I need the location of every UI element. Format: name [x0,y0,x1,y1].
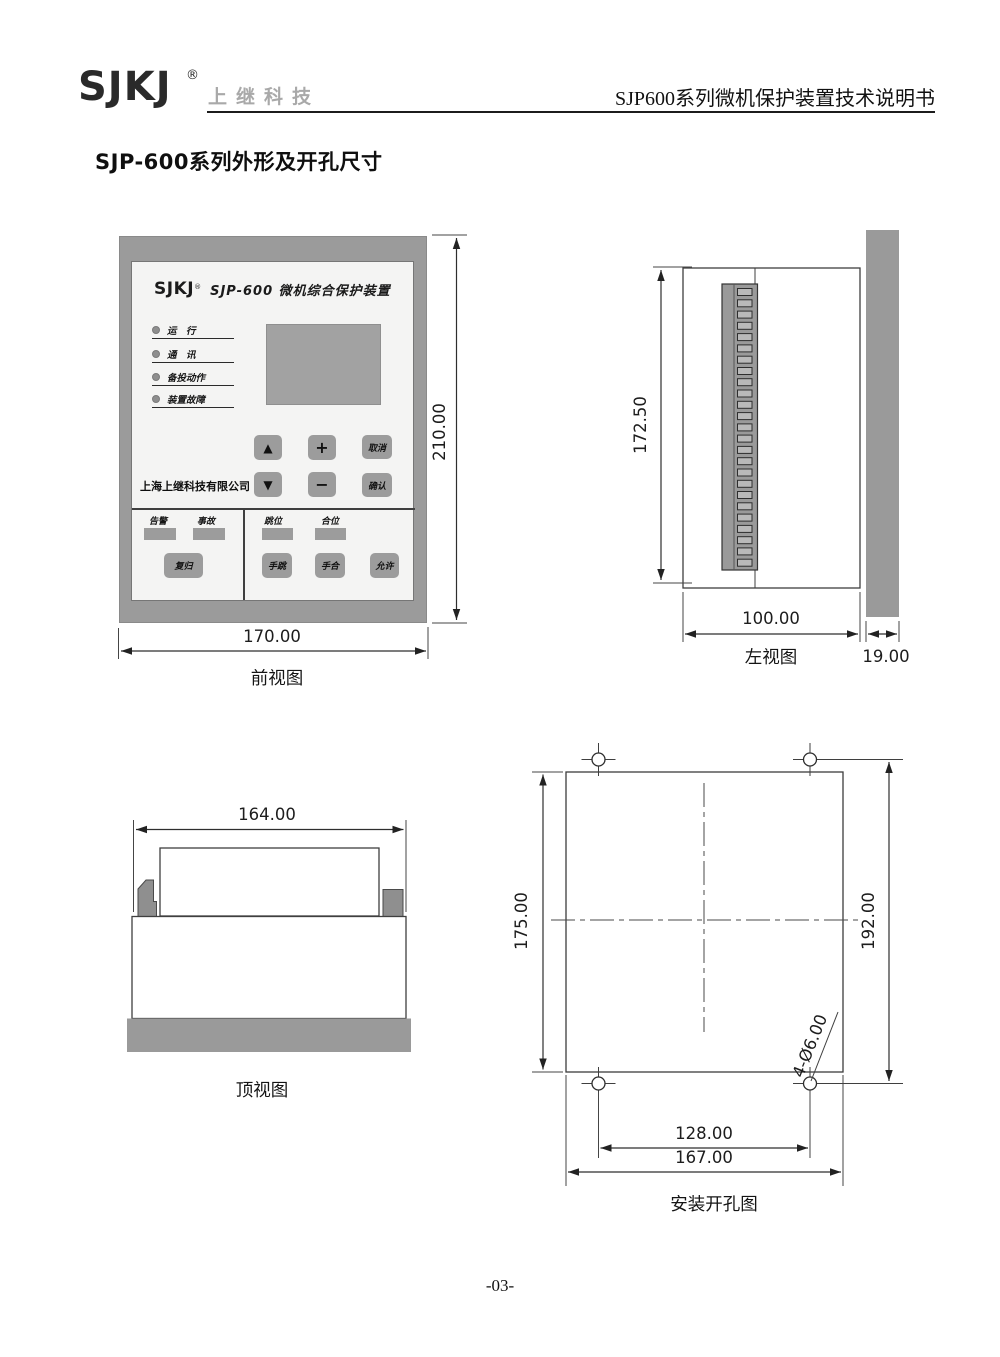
dim-panel-value: 19.00 [862,647,909,666]
device-body-side [683,268,860,588]
registered-trademark-icon: ® [186,68,199,83]
dim-depth-value: 100.00 [742,609,800,628]
mount-view-caption: 安装开孔图 [670,1195,758,1215]
mounting-panel-top [127,1019,411,1053]
right-mounting-clip [383,890,403,917]
dim-hole-h-value: 128.00 [675,1124,733,1143]
device-bezel-top [132,917,406,1019]
front-view-caption: 前视图 [251,669,304,689]
front-view-dimensions: 210.00 170.00 前视图 [90,225,480,695]
brand-name-cn: 上继科技 [208,82,320,109]
page-number: -03- [0,1276,1000,1296]
dim-hole-v-value: 192.00 [859,892,878,950]
top-view-drawing: 164.00 顶视图 [90,780,460,1110]
document-title: SJP600系列微机保护装置技术说明书 [595,82,935,111]
left-view-caption: 左视图 [745,648,798,668]
mounting-cutout-drawing: 175.00 192.00 4-Ø6.00 128.00 167.00 安装开孔… [495,725,975,1225]
page-title: SJP-600系列外形及开孔尺寸 [95,146,383,176]
left-view-drawing: 172.50 100.00 19.00 左视图 [615,215,965,690]
manual-page: SJKJ ® 上继科技 SJP600系列微机保护装置技术说明书 SJP-600系… [0,0,1000,1357]
company-logo: SJKJ [78,64,172,110]
mounting-hole-top-left [582,743,616,776]
mounting-panel-side [866,230,899,617]
mounting-hole-top-right [793,743,903,776]
device-body-top [160,848,379,916]
dim-cutout-height-value: 175.00 [512,892,531,950]
top-view-caption: 顶视图 [236,1081,289,1101]
dim-width-value: 170.00 [243,627,301,646]
header-divider [207,111,935,113]
dim-height-value: 172.50 [631,396,650,454]
dim-cutout-width-value: 167.00 [675,1148,733,1167]
left-mounting-clip [138,880,157,917]
dim-width-value: 164.00 [238,805,296,824]
dim-height-value: 210.00 [430,403,449,461]
